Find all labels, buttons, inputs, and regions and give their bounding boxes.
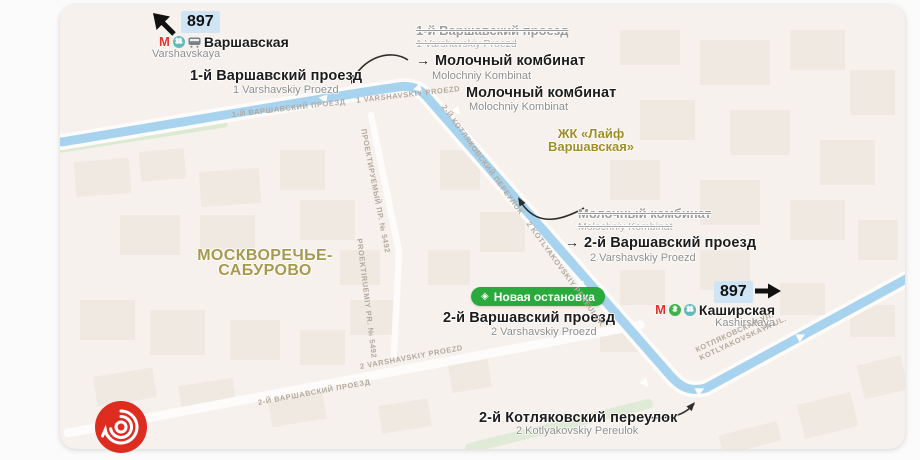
old-stop-name: Молочный комбинат xyxy=(578,206,756,221)
district-label: МОСКВОРЕЧЬЕ- САБУРОВО xyxy=(185,248,345,278)
rename-arrow-icon: → xyxy=(565,234,579,250)
route-direction-east-arrow xyxy=(753,281,783,301)
metro-logo-icon: М xyxy=(655,304,666,316)
stop-label-en: 2 Kotlyakovskiy Pereulok xyxy=(516,425,638,437)
suburban-train-icon xyxy=(188,37,201,48)
rename-arrow-icon: → xyxy=(416,52,430,68)
metro-line-2-icon: 2 xyxy=(669,304,681,316)
metro-line-11-icon: 11 xyxy=(173,36,185,48)
new-stop-name: 2-й Варшавский проезд xyxy=(584,235,756,251)
diamond-icon: ◈ xyxy=(481,290,489,304)
terminal-name-en: Varshavskaya xyxy=(152,48,220,60)
stop-label: 1-й Варшавский проезд xyxy=(190,68,362,84)
old-stop-name-en: 1 Varshavskiy Proezd xyxy=(416,38,585,50)
renamed-stop-2: Молочный комбинат Molochniy Kombinat →2-… xyxy=(578,206,756,264)
metro-logo-icon: М xyxy=(159,36,170,48)
route-number-badge-right: 897 xyxy=(714,281,753,303)
route-number-badge-left: 897 xyxy=(181,11,220,33)
stop-label: 2-й Котляковский переулок xyxy=(479,410,677,426)
new-stop-name-en: 2 Varshavskiy Proezd xyxy=(590,252,756,264)
stop-label: Молочный комбинат xyxy=(466,85,616,101)
new-stop-name: Молочный комбинат xyxy=(435,53,585,69)
route-change-map: 897 М 11 Варшавская Varshavskaya 1-й Вар… xyxy=(0,0,920,460)
metro-line-11-icon: 11 xyxy=(684,304,696,316)
stop-label-en: 1 Varshavskiy Proezd xyxy=(233,84,339,96)
new-stop-name-en: Molochniy Kombinat xyxy=(432,70,585,82)
moscow-transport-logo xyxy=(95,401,147,453)
place-zhk-life-varshavskaya: ЖК «Лайф Варшавская» xyxy=(546,127,636,153)
old-stop-name-en: Molochniy Kombinat xyxy=(578,221,756,233)
stop-label-en: 2 Varshavskiy Proezd xyxy=(491,326,597,338)
terminal-kashirskaya: М 2 11 Каширская xyxy=(640,302,775,318)
stop-label-en: Molochniy Kombinat xyxy=(469,101,568,113)
old-stop-name: 1-й Варшавский проезд xyxy=(416,23,585,38)
renamed-stop-1: 1-й Варшавский проезд 1 Varshavskiy Proe… xyxy=(416,23,585,82)
